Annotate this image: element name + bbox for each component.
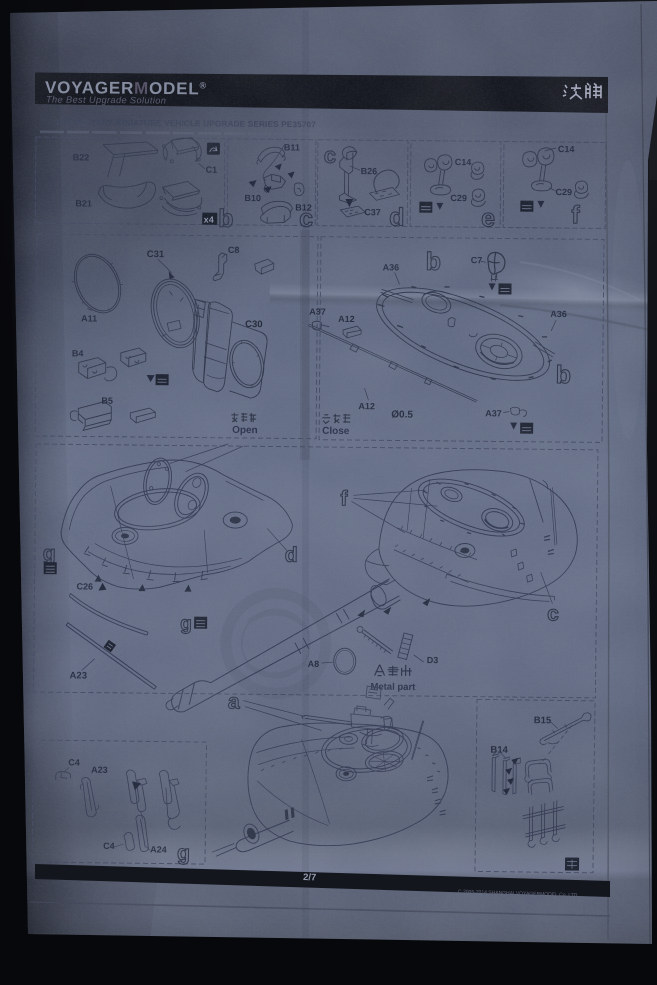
svg-text:2/7: 2/7 [303,872,317,883]
